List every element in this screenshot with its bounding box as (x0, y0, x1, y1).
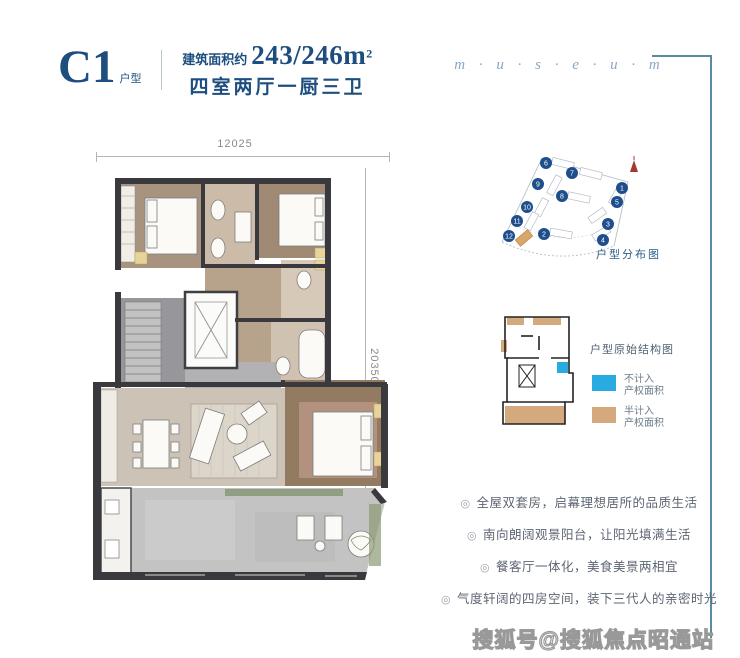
area-label: 建筑面积约 (182, 52, 247, 67)
unit-header: C1户型 (58, 44, 141, 91)
legend-item-not-counted: 不计入 产权面积 (592, 374, 664, 398)
svg-text:10: 10 (523, 205, 531, 212)
svg-text:11: 11 (513, 219, 520, 226)
svg-text:9: 9 (536, 182, 540, 189)
svg-text:5: 5 (615, 200, 619, 207)
floor-plan (85, 152, 397, 604)
bullet-icon: ◎ (460, 498, 470, 510)
svg-text:8: 8 (560, 194, 564, 201)
svg-text:6: 6 (544, 161, 548, 168)
svg-text:4: 4 (601, 238, 605, 245)
elevator-core (185, 292, 237, 368)
legend-swatch-blue (592, 375, 616, 391)
key-plan-title: 户型原始结构图 (590, 341, 674, 357)
feature-item: ◎南向朗阔观景阳台，让阳光填满生活 (467, 524, 691, 543)
brand-wordmark: m · u · s · e · u · m (452, 57, 667, 74)
key-plan-highlight (557, 362, 568, 373)
svg-text:1: 1 (620, 186, 624, 193)
site-plan-caption: 户型分布图 (596, 246, 661, 262)
stairs (125, 302, 161, 382)
legend-item-half-counted: 半计入 产权面积 (592, 406, 664, 430)
legend-label: 半计入 产权面积 (624, 406, 664, 430)
watermark-text: 搜狐号@搜狐焦点昭通站 (473, 624, 714, 654)
room-layout-label: 四室两厅一厨三卫 (170, 72, 385, 99)
bullet-icon: ◎ (467, 530, 477, 542)
unit-type-label: 户型 (119, 73, 141, 85)
frame-line-top (652, 55, 712, 57)
svg-text:2: 2 (542, 232, 546, 239)
svg-text:3: 3 (606, 222, 610, 229)
page: C1户型 建筑面积约 243/246m2 四室两厅一厨三卫 m · u · s … (0, 0, 740, 658)
key-plan-elevator (519, 365, 535, 387)
legend-swatch-tan (592, 407, 616, 423)
header-divider (161, 50, 162, 90)
dimension-top-label: 12025 (130, 138, 340, 150)
area-value: 243/246m (251, 40, 366, 70)
area-superscript: 2 (366, 47, 373, 61)
unit-code: C1 (58, 41, 115, 93)
key-plan (495, 310, 585, 435)
area-line: 建筑面积约 243/246m2 (170, 40, 385, 71)
north-arrow-icon (630, 156, 638, 172)
bullet-icon: ◎ (441, 594, 451, 606)
svg-text:7: 7 (570, 171, 574, 178)
legend-label: 不计入 产权面积 (624, 374, 664, 398)
feature-item: ◎餐客厅一体化，美食美景两相宜 (480, 556, 678, 575)
area-block: 建筑面积约 243/246m2 四室两厅一厨三卫 (170, 40, 385, 99)
feature-list: ◎全屋双套房，启幕理想居所的品质生活 ◎南向朗阔观景阳台，让阳光填满生活 ◎餐客… (448, 492, 710, 607)
frame-line-right (710, 55, 712, 638)
bullet-icon: ◎ (480, 562, 490, 574)
feature-item: ◎全屋双套房，启幕理想居所的品质生活 (460, 492, 697, 511)
feature-item: ◎气度轩阔的四房空间，装下三代人的亲密时光 (441, 588, 717, 607)
svg-text:12: 12 (505, 234, 513, 241)
